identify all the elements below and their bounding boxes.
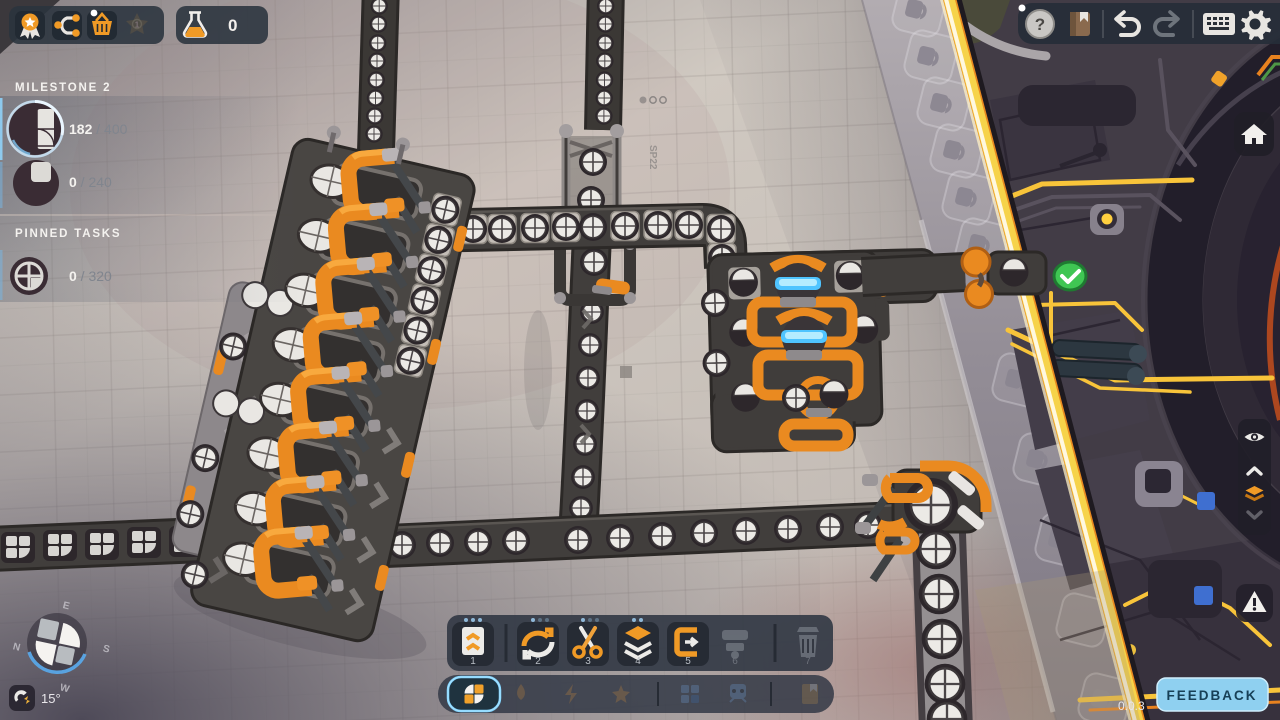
svg-text:2: 2 (535, 656, 541, 667)
svg-text:5: 5 (685, 656, 691, 667)
svg-text:FEEDBACK: FEEDBACK (1166, 688, 1257, 703)
svg-text:3: 3 (585, 656, 591, 667)
svg-text:4: 4 (635, 656, 641, 667)
svg-text:7: 7 (805, 656, 811, 667)
svg-text:0 / 320: 0 / 320 (69, 268, 112, 284)
svg-text:MILESTONE 2: MILESTONE 2 (15, 82, 111, 94)
svg-text:182 / 400: 182 / 400 (69, 121, 128, 137)
svg-text:6: 6 (732, 656, 738, 667)
svg-text:0.0.3: 0.0.3 (1118, 699, 1145, 713)
svg-text:1: 1 (135, 21, 140, 30)
svg-text:S: S (102, 643, 111, 655)
svg-text:1: 1 (470, 656, 476, 667)
svg-text:?: ? (1035, 15, 1045, 34)
svg-text:0 / 240: 0 / 240 (69, 174, 112, 190)
svg-text:E: E (62, 600, 71, 612)
svg-text:PINNED TASKS: PINNED TASKS (15, 228, 121, 240)
svg-text:0: 0 (228, 16, 237, 35)
svg-text:15°: 15° (41, 691, 61, 706)
svg-text:N: N (12, 641, 22, 653)
